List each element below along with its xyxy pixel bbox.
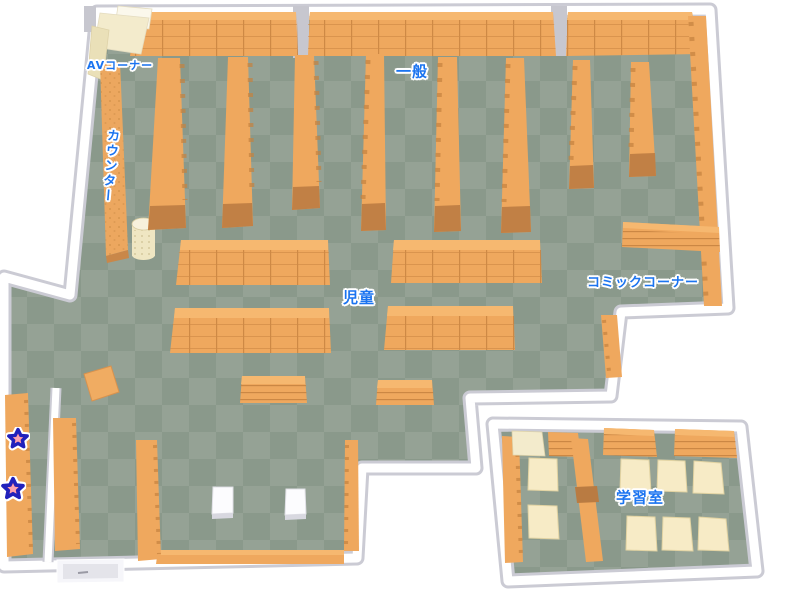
floor-map: AVコーナー カウンター 一般 児童 コミックコーナー 学習室	[0, 0, 800, 600]
area-label-comic-corner: コミックコーナー	[587, 272, 699, 291]
top-shelf-rack-middle	[308, 12, 556, 56]
comic-corner-shelf	[622, 222, 720, 252]
bench-2	[285, 489, 306, 520]
bench-1	[212, 487, 233, 519]
low-bookshelf-1	[240, 376, 307, 403]
entrance-door	[57, 559, 124, 583]
area-label-study-room: 学習室	[616, 487, 664, 508]
entrance-bookshelf-right	[136, 440, 161, 561]
children-bookshelf-3	[170, 308, 331, 353]
floor-map-canvas	[0, 0, 800, 600]
star-marker-icon	[9, 430, 27, 447]
wall-bookshelf-bottom-right	[344, 440, 359, 551]
aisle-bookshelf-3	[292, 55, 320, 210]
aisle-bookshelf-5	[434, 57, 461, 232]
door-handle-icon	[78, 572, 88, 573]
bottom-wall-low-shelf	[156, 550, 344, 564]
top-shelf-rack-left	[130, 12, 298, 56]
study-top-shelf-1	[603, 428, 657, 457]
study-top-shelf-2	[674, 429, 737, 458]
top-shelf-rack-right	[566, 12, 701, 56]
area-label-children: 児童	[343, 287, 375, 308]
aisle-bookshelf-7	[569, 60, 594, 189]
entrance-bookshelf-left	[53, 418, 80, 551]
children-bookshelf-1	[176, 240, 330, 285]
area-label-general: 一般	[396, 61, 428, 82]
children-bookshelf-2	[391, 240, 542, 283]
low-bookshelf-2	[376, 380, 434, 405]
children-bookshelf-4	[384, 306, 515, 350]
star-marker-icon	[3, 479, 23, 498]
area-label-av-corner: AVコーナー	[87, 57, 153, 73]
